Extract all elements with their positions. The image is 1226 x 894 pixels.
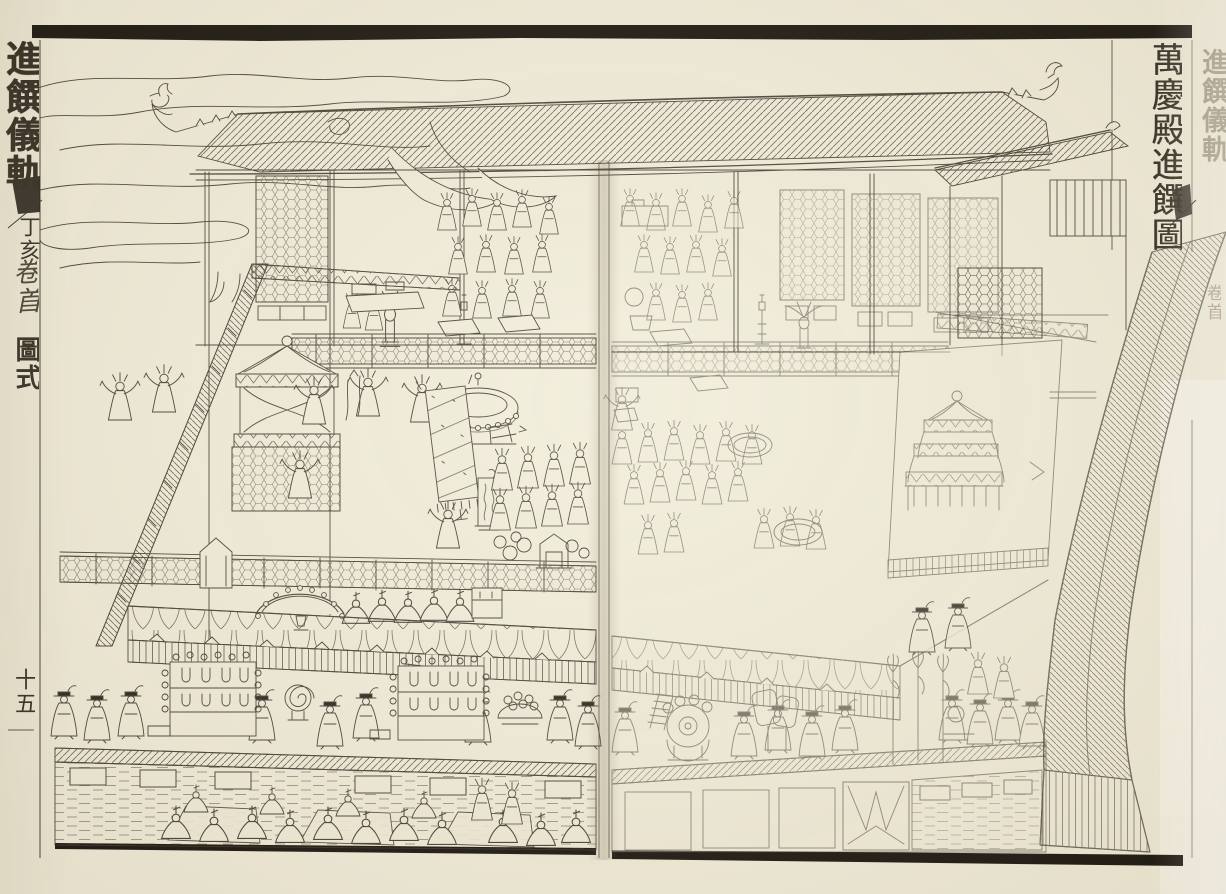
plate-caption: 萬慶殿進饌圖	[1136, 42, 1182, 260]
fold-gutter	[588, 160, 620, 860]
adjacent-leaf-volume-label: 卷首	[1197, 284, 1221, 350]
upper-balustrade-right	[612, 342, 948, 376]
woodblock-illustration	[0, 0, 1226, 894]
spine-title: 進饌儀軌	[0, 40, 39, 220]
upper-balustrade-left	[292, 334, 596, 368]
adjacent-leaf-spine-title: 進饌儀軌	[1199, 48, 1226, 234]
book-scan-spread: 進饌儀軌 丁亥 卷首 圖式 十五 萬慶殿進饌圖 進饌儀軌 卷首	[0, 0, 1226, 894]
page-number: 十五	[7, 668, 35, 738]
adjacent-leaf-paper	[1160, 380, 1226, 894]
section-label: 圖式	[5, 336, 39, 416]
lattice-door-left	[256, 176, 328, 320]
gate-curtains	[843, 782, 909, 850]
